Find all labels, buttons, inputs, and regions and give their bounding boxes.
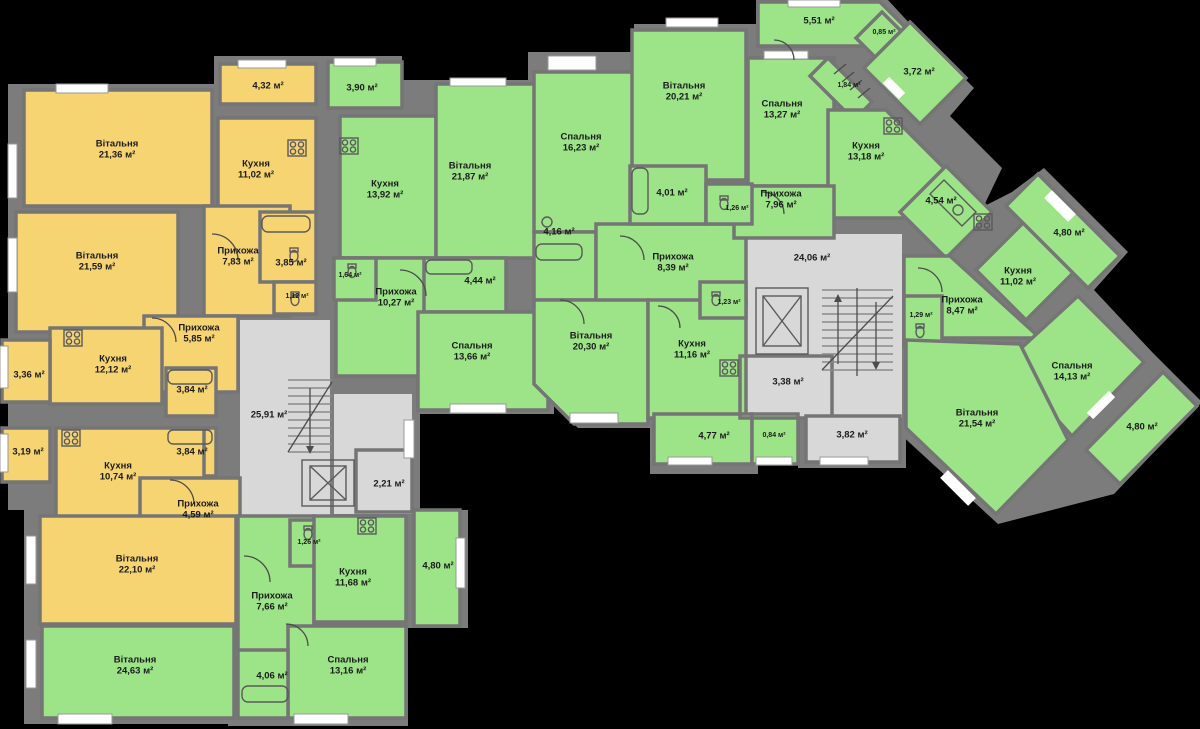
room-label: Спальня13,27 м² bbox=[761, 99, 802, 122]
room-label: 25,91 м² bbox=[251, 409, 288, 420]
room-label: 3,72 м² bbox=[903, 66, 934, 77]
room-label: 4,06 м² bbox=[256, 670, 287, 681]
room-label: 0,85 м² bbox=[872, 29, 895, 37]
room-label: Прихожа7,83 м² bbox=[217, 246, 258, 269]
room-label: 24,06 м² bbox=[794, 252, 831, 263]
room-label: 1,26 м² bbox=[297, 539, 320, 547]
room-label: 4,80 м² bbox=[422, 560, 453, 571]
room-label: Прихожа8,47 м² bbox=[941, 295, 982, 318]
room-label: 3,84 м² bbox=[176, 446, 207, 457]
room-label: Кухня12,12 м² bbox=[95, 354, 132, 377]
room-label: 1,29 м² bbox=[909, 312, 932, 320]
room-label: 1,26 м² bbox=[725, 205, 748, 213]
room-label: Кухня10,74 м² bbox=[100, 461, 137, 484]
room-label: 4,16 м² bbox=[543, 226, 574, 237]
room-label: Кухня11,02 м² bbox=[1000, 266, 1036, 289]
room-label: 3,85 м² bbox=[275, 257, 306, 268]
room-label: Спальня14,13 м² bbox=[1051, 361, 1092, 384]
room-label: 3,19 м² bbox=[12, 446, 43, 457]
room-label: Кухня11,68 м² bbox=[335, 567, 371, 590]
room-label: Вітальня20,21 м² bbox=[663, 81, 706, 104]
room-label: Спальня13,16 м² bbox=[327, 655, 368, 678]
room-label: 3,38 м² bbox=[772, 376, 803, 387]
room-label: 0,84 м² bbox=[762, 432, 785, 440]
room-label: 4,32 м² bbox=[252, 80, 283, 91]
room-label: 4,01 м² bbox=[656, 187, 687, 198]
room-label: Кухня11,02 м² bbox=[238, 159, 274, 182]
room-label: Прихожа4,59 м² bbox=[177, 499, 218, 522]
room-label: 4,54 м² bbox=[925, 195, 956, 206]
room-label: Вітальня21,59 м² bbox=[76, 251, 119, 274]
room-label: Спальня13,66 м² bbox=[451, 341, 492, 364]
room-label: Прихожа7,96 м² bbox=[760, 189, 801, 212]
room-label: Кухня13,92 м² bbox=[367, 179, 404, 202]
room-label: 4,44 м² bbox=[464, 275, 495, 286]
room-label: Вітальня21,36 м² bbox=[96, 139, 139, 162]
room-label: 3,36 м² bbox=[13, 369, 44, 380]
room-label: 2,21 м² bbox=[373, 478, 404, 489]
room-label: Спальня16,23 м² bbox=[560, 132, 601, 155]
room-label: 1,12 м² bbox=[285, 293, 308, 301]
room-label: 4,80 м² bbox=[1126, 421, 1157, 432]
room-label: 3,90 м² bbox=[346, 82, 377, 93]
room-label: Прихожа5,85 м² bbox=[178, 323, 219, 346]
room-label: 1,84 м² bbox=[837, 82, 860, 90]
room-label: 4,80 м² bbox=[1053, 227, 1084, 238]
room-label: 3,84 м² bbox=[176, 384, 207, 395]
room-label: Вітальня20,30 м² bbox=[570, 331, 613, 354]
room-label: 1,64 м² bbox=[338, 272, 361, 280]
room-label: Прихожа10,27 м² bbox=[375, 287, 416, 310]
room-label: Прихожа7,66 м² bbox=[251, 591, 292, 614]
room-label: 5,51 м² bbox=[803, 15, 834, 26]
room-label: Кухня13,18 м² bbox=[848, 141, 885, 164]
room-label: Вітальня21,54 м² bbox=[956, 408, 999, 431]
room-label: 4,77 м² bbox=[698, 430, 729, 441]
room-label: Прихожа8,39 м² bbox=[652, 252, 693, 275]
floor-plan: 4,32 м² Вітальня21,36 м² Кухня11,02 м² П… bbox=[0, 0, 1200, 729]
room-label: Вітальня21,87 м² bbox=[449, 161, 492, 184]
room-labels: 4,32 м² Вітальня21,36 м² Кухня11,02 м² П… bbox=[0, 0, 1200, 729]
room-label: 1,23 м² bbox=[717, 299, 740, 307]
room-label: 3,82 м² bbox=[836, 429, 867, 440]
room-label: Вітальня22,10 м² bbox=[116, 554, 159, 577]
room-label: Кухня11,16 м² bbox=[674, 339, 710, 362]
room-label: Вітальня24,63 м² bbox=[114, 655, 157, 678]
